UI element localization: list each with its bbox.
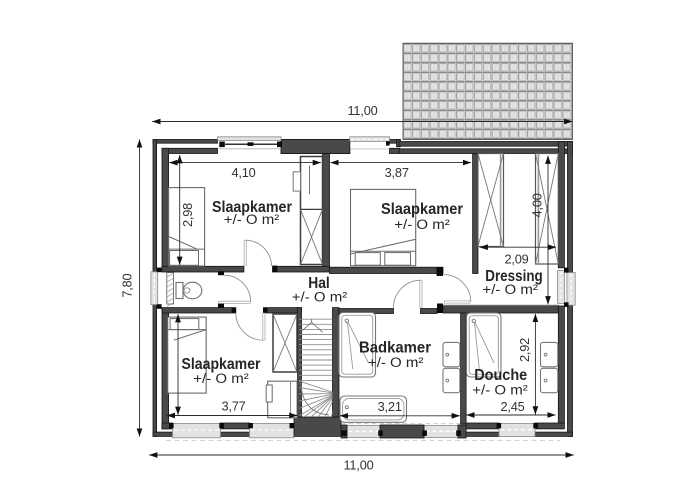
svg-text:2,09: 2,09 bbox=[504, 252, 528, 267]
svg-text:+/- O m²: +/- O m² bbox=[394, 217, 450, 232]
svg-text:+/- O m²: +/- O m² bbox=[482, 282, 538, 297]
svg-text:3,87: 3,87 bbox=[385, 165, 409, 180]
svg-text:2,45: 2,45 bbox=[500, 399, 524, 414]
svg-text:+/- O m²: +/- O m² bbox=[472, 382, 528, 397]
svg-text:+/- O m²: +/- O m² bbox=[292, 290, 348, 305]
svg-text:Slaapkamer: Slaapkamer bbox=[381, 201, 463, 218]
svg-text:3,21: 3,21 bbox=[378, 399, 402, 414]
svg-text:2,92: 2,92 bbox=[517, 338, 532, 362]
svg-text:11,00: 11,00 bbox=[343, 458, 373, 473]
svg-text:3,77: 3,77 bbox=[221, 399, 245, 414]
svg-text:+/- O m²: +/- O m² bbox=[224, 212, 280, 227]
svg-text:4,10: 4,10 bbox=[231, 165, 255, 180]
svg-text:7,80: 7,80 bbox=[119, 273, 134, 297]
svg-text:4,00: 4,00 bbox=[529, 193, 544, 217]
svg-text:2,98: 2,98 bbox=[180, 203, 195, 227]
svg-text:+/- O m²: +/- O m² bbox=[368, 355, 424, 370]
svg-text:+/- O m²: +/- O m² bbox=[193, 371, 249, 386]
svg-text:11,00: 11,00 bbox=[347, 103, 377, 118]
